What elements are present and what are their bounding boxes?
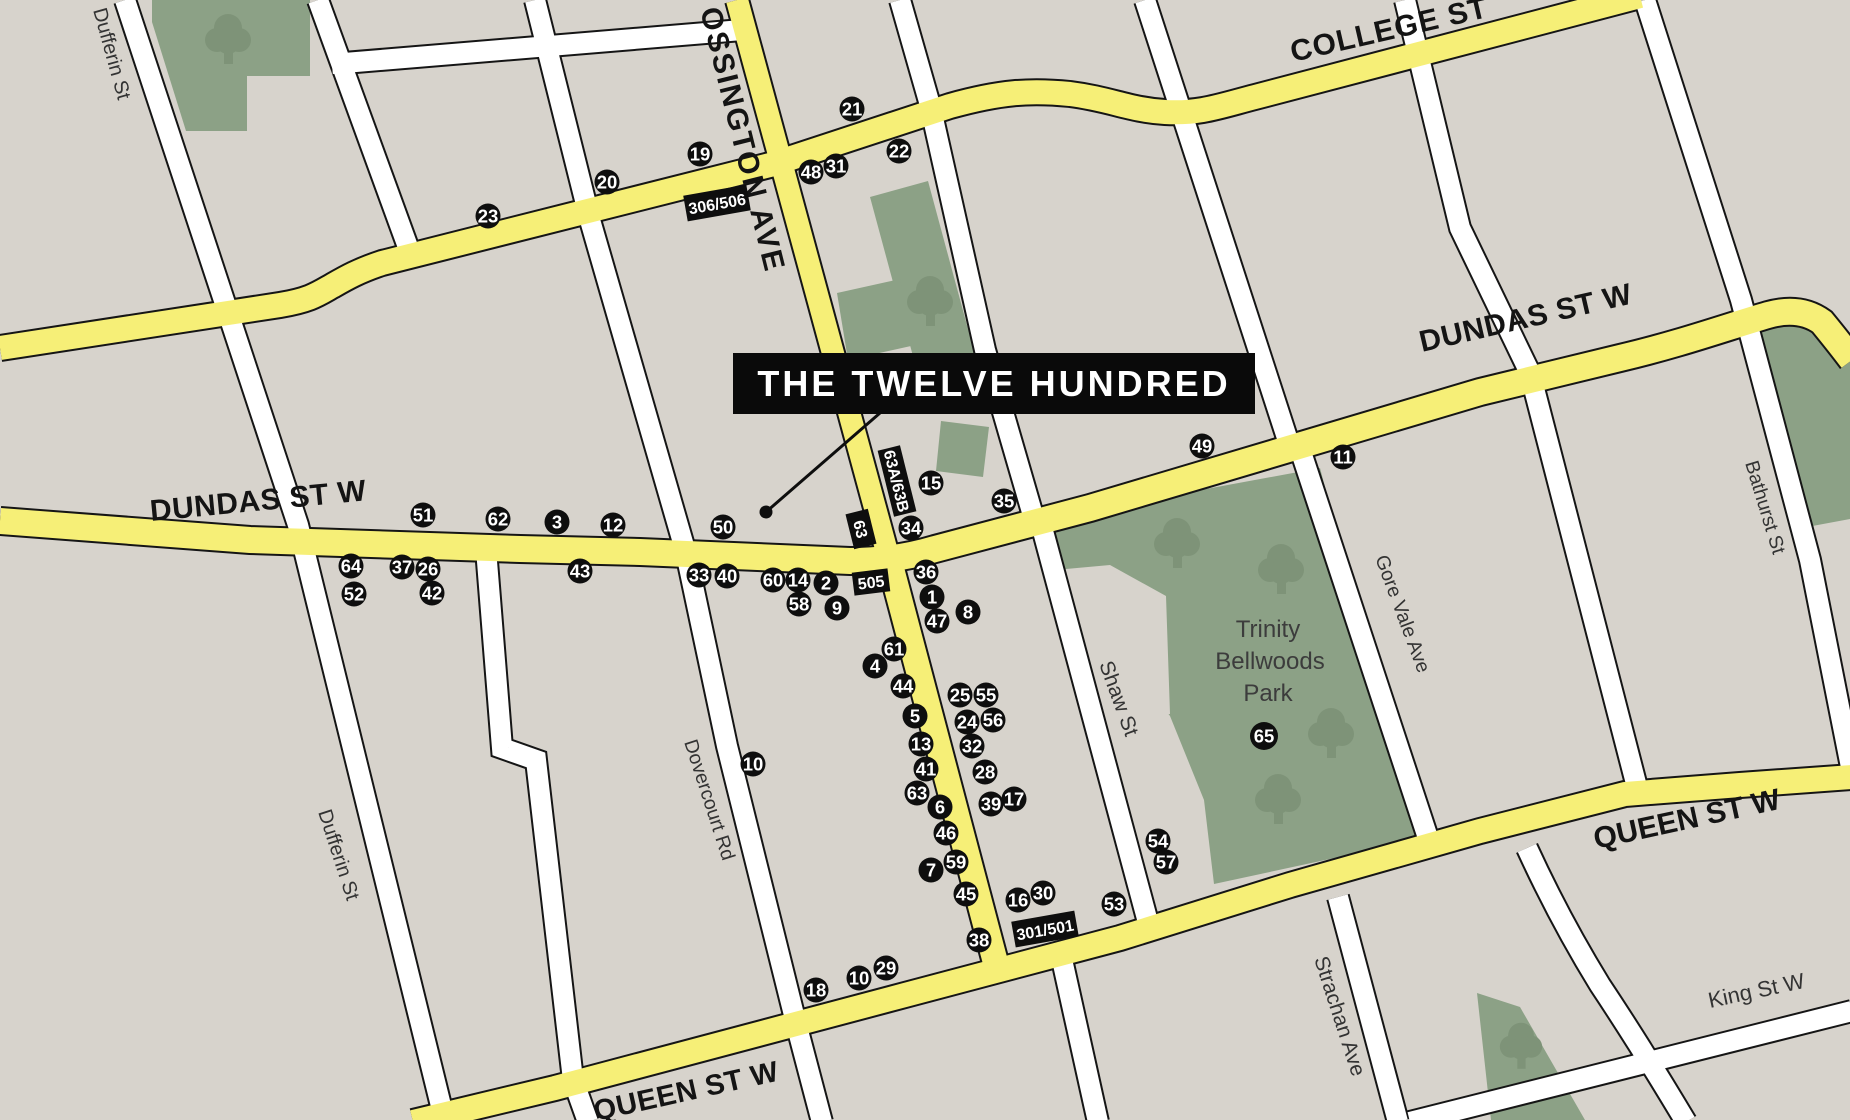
svg-text:52: 52 [344, 584, 365, 605]
svg-text:Trinity: Trinity [1236, 616, 1300, 643]
svg-text:64: 64 [341, 556, 362, 577]
svg-text:10: 10 [849, 968, 870, 989]
svg-text:62: 62 [488, 509, 509, 530]
svg-text:59: 59 [946, 852, 967, 873]
svg-text:12: 12 [603, 515, 624, 536]
svg-text:17: 17 [1004, 789, 1025, 810]
svg-text:53: 53 [1104, 894, 1125, 915]
svg-text:40: 40 [717, 566, 738, 587]
svg-text:44: 44 [893, 676, 914, 697]
svg-text:18: 18 [806, 980, 827, 1001]
svg-text:50: 50 [713, 517, 734, 538]
svg-text:38: 38 [969, 930, 990, 951]
svg-text:22: 22 [889, 141, 910, 162]
svg-text:36: 36 [916, 562, 937, 583]
svg-text:9: 9 [832, 598, 842, 619]
svg-text:55: 55 [976, 685, 997, 706]
svg-text:56: 56 [983, 710, 1004, 731]
svg-text:23: 23 [478, 206, 499, 227]
svg-text:Park: Park [1243, 680, 1293, 707]
svg-text:1: 1 [927, 587, 937, 608]
svg-text:47: 47 [927, 611, 948, 632]
svg-text:26: 26 [418, 559, 439, 580]
svg-text:15: 15 [921, 473, 942, 494]
svg-text:THE TWELVE HUNDRED: THE TWELVE HUNDRED [757, 363, 1230, 404]
svg-text:29: 29 [876, 958, 897, 979]
svg-text:10: 10 [743, 754, 764, 775]
svg-text:65: 65 [1254, 726, 1275, 747]
svg-text:63: 63 [907, 783, 928, 804]
svg-text:42: 42 [422, 583, 443, 604]
svg-text:2: 2 [821, 573, 831, 594]
svg-text:37: 37 [392, 557, 413, 578]
svg-text:39: 39 [981, 794, 1002, 815]
svg-text:25: 25 [950, 685, 971, 706]
svg-text:28: 28 [975, 762, 996, 783]
svg-text:54: 54 [1148, 831, 1169, 852]
svg-text:20: 20 [597, 172, 618, 193]
svg-text:45: 45 [956, 884, 977, 905]
svg-text:13: 13 [911, 734, 932, 755]
svg-text:6: 6 [935, 797, 945, 818]
svg-text:24: 24 [957, 712, 978, 733]
svg-text:16: 16 [1008, 890, 1029, 911]
svg-text:Bellwoods: Bellwoods [1215, 648, 1324, 675]
svg-text:505: 505 [857, 573, 886, 593]
svg-text:43: 43 [570, 561, 591, 582]
svg-text:51: 51 [413, 505, 434, 526]
svg-text:11: 11 [1333, 447, 1353, 468]
svg-text:19: 19 [690, 144, 711, 165]
svg-text:7: 7 [926, 860, 936, 881]
svg-text:58: 58 [789, 594, 810, 615]
svg-text:46: 46 [936, 823, 957, 844]
svg-text:4: 4 [870, 656, 881, 677]
svg-text:35: 35 [994, 491, 1015, 512]
svg-text:48: 48 [801, 162, 822, 183]
svg-text:57: 57 [1156, 852, 1177, 873]
svg-text:33: 33 [689, 565, 710, 586]
svg-text:8: 8 [963, 602, 973, 623]
svg-text:49: 49 [1192, 436, 1213, 457]
svg-text:5: 5 [910, 706, 920, 727]
svg-text:30: 30 [1033, 883, 1054, 904]
svg-text:31: 31 [826, 156, 847, 177]
svg-text:60: 60 [763, 570, 784, 591]
svg-text:34: 34 [901, 518, 922, 539]
svg-text:61: 61 [884, 639, 905, 660]
svg-text:41: 41 [916, 759, 937, 780]
svg-text:14: 14 [788, 570, 809, 591]
svg-text:32: 32 [962, 736, 983, 757]
svg-text:21: 21 [842, 99, 863, 120]
svg-text:3: 3 [552, 512, 562, 533]
